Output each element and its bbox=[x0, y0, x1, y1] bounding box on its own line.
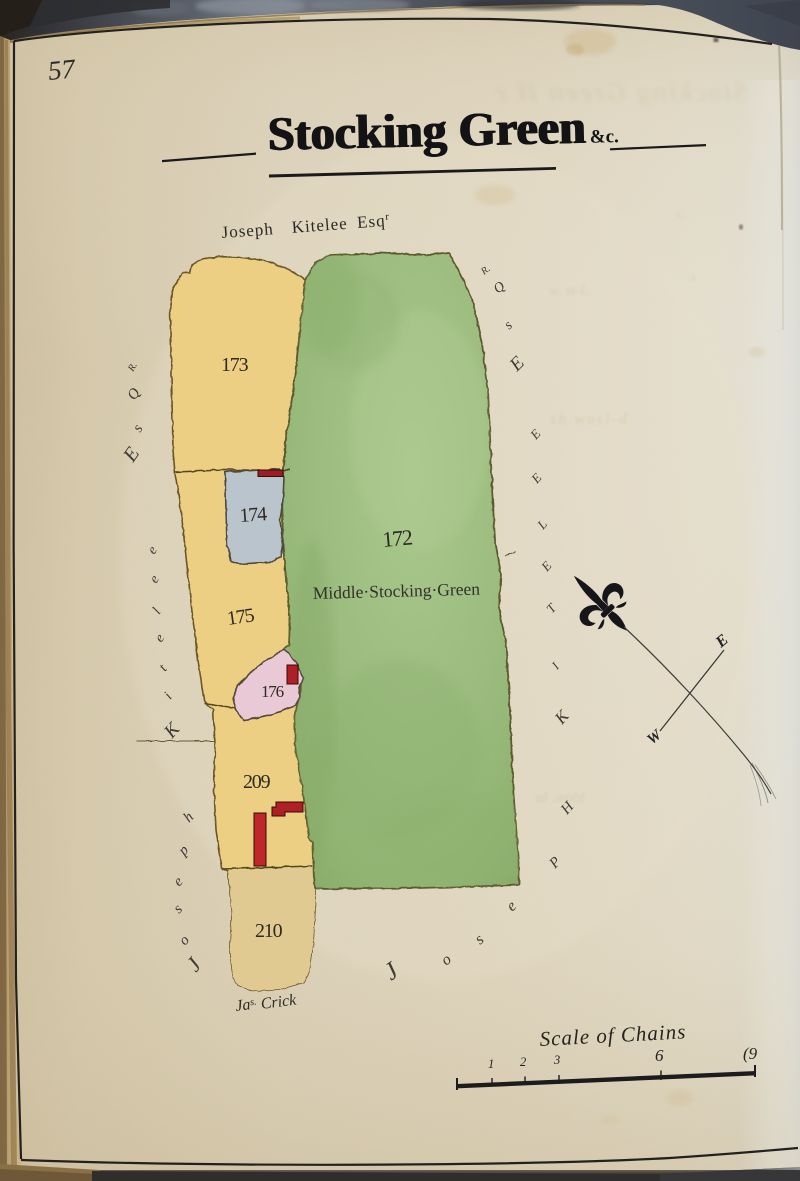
svg-text:174: 174 bbox=[239, 503, 268, 527]
svg-text:173: 173 bbox=[221, 354, 249, 376]
svg-text:.s: .s bbox=[688, 270, 696, 284]
svg-text:s..: s.. bbox=[676, 206, 688, 221]
svg-text:172: 172 bbox=[381, 524, 413, 551]
svg-text:1: 1 bbox=[488, 1057, 494, 1071]
svg-text:sh.wusl-d: sh.wusl-d bbox=[550, 411, 629, 428]
svg-text:6: 6 bbox=[655, 1046, 664, 1065]
svg-text:(9: (9 bbox=[743, 1044, 758, 1063]
svg-text:210: 210 bbox=[255, 920, 283, 942]
svg-text:w. st-l..: w. st-l.. bbox=[549, 283, 592, 299]
svg-text:57: 57 bbox=[46, 53, 77, 86]
svg-text:3: 3 bbox=[553, 1053, 560, 1067]
svg-text:2: 2 bbox=[520, 1055, 526, 1069]
svg-text:176: 176 bbox=[261, 682, 284, 701]
svg-text:175: 175 bbox=[226, 604, 256, 630]
svg-text:&c.: &c. bbox=[590, 126, 619, 148]
svg-text:209: 209 bbox=[243, 771, 271, 793]
svg-text:Stocking Green: Stocking Green bbox=[267, 101, 586, 161]
